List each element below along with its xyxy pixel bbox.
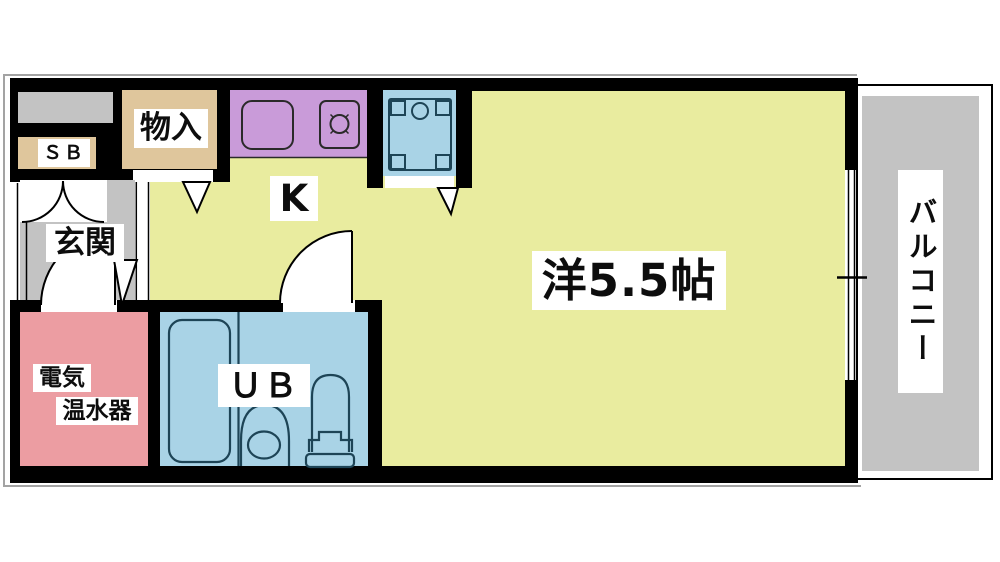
kitchen-fixtures	[230, 101, 367, 158]
sliding-window-lines	[837, 170, 867, 380]
kitchen-sink	[242, 101, 293, 149]
toilet-bowl	[248, 432, 280, 459]
closet-double-doors	[20, 180, 107, 222]
label-entrance: 玄関	[46, 224, 124, 262]
vanity-step	[309, 432, 352, 452]
marker-niche-opening	[438, 188, 458, 214]
toilet-tank	[241, 405, 289, 466]
linework-overlay	[0, 0, 1000, 562]
label-shoe-box: ＳＢ	[38, 139, 90, 167]
label-unit-bath: ＵＢ	[218, 364, 310, 407]
label-heater-line2: 温水器	[56, 397, 138, 425]
label-heater-line1: 電気	[33, 364, 91, 392]
washer-pan	[389, 99, 451, 170]
vanity-base	[306, 454, 354, 467]
stove	[320, 101, 359, 148]
floor-plan: ＳＢ 物入 K 玄関 洋5.5帖 ＵＢ 電気 温水器 バルコニー	[0, 0, 1000, 562]
opening-frame-lines	[136, 182, 148, 300]
label-kitchen: K	[270, 176, 318, 221]
label-main-room: 洋5.5帖	[532, 251, 726, 310]
washer-faucet	[412, 103, 428, 119]
unit-bath-door	[280, 231, 352, 303]
label-balcony: バルコニー	[898, 170, 943, 393]
label-storage: 物入	[134, 109, 208, 148]
marker-storage-opening	[183, 182, 210, 212]
marker-entrance-opening	[114, 260, 137, 305]
